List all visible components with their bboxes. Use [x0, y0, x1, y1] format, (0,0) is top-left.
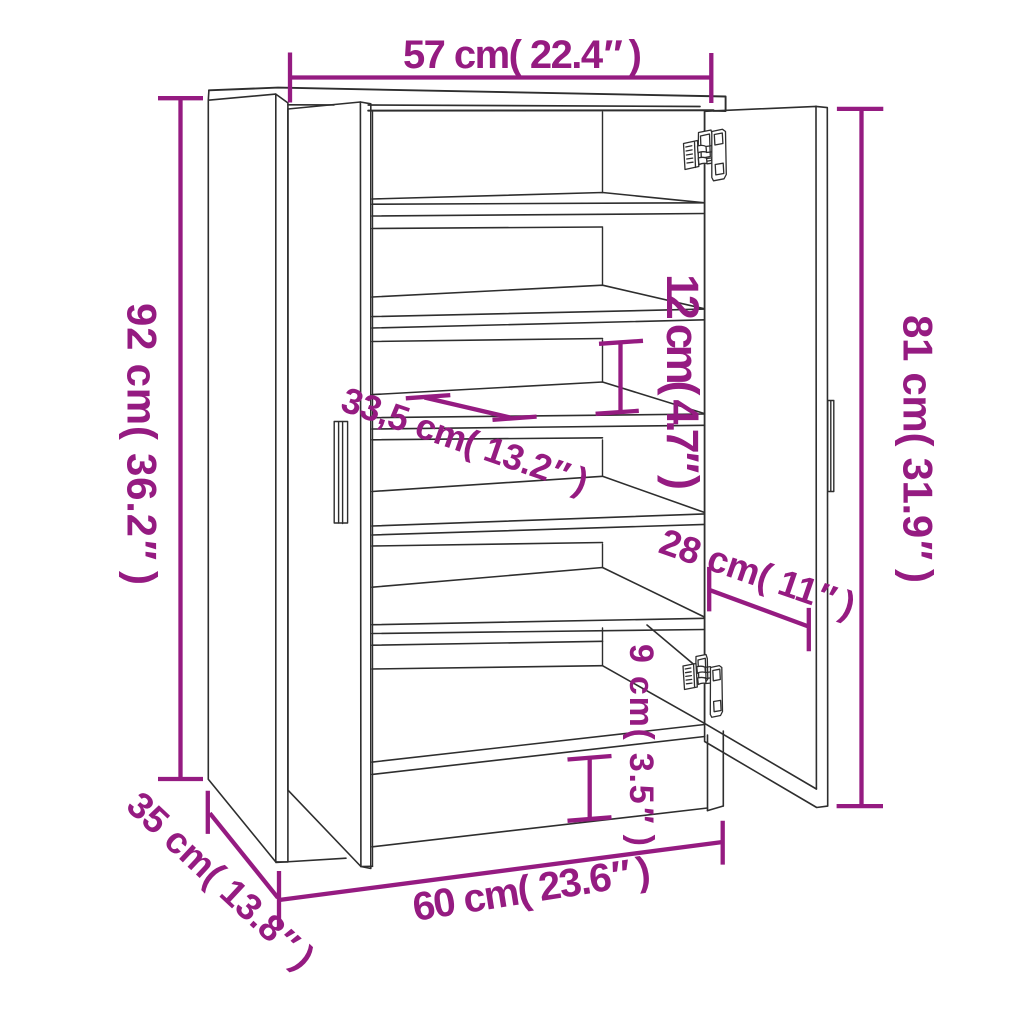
- svg-text:57 cm( 22.4″ ): 57 cm( 22.4″ ): [403, 33, 642, 77]
- svg-text:92 cm( 36.2″ ): 92 cm( 36.2″ ): [118, 303, 165, 585]
- svg-text:12 cm( 4.7″ ): 12 cm( 4.7″ ): [657, 274, 708, 490]
- svg-text:81 cm( 31.9″ ): 81 cm( 31.9″ ): [894, 315, 941, 583]
